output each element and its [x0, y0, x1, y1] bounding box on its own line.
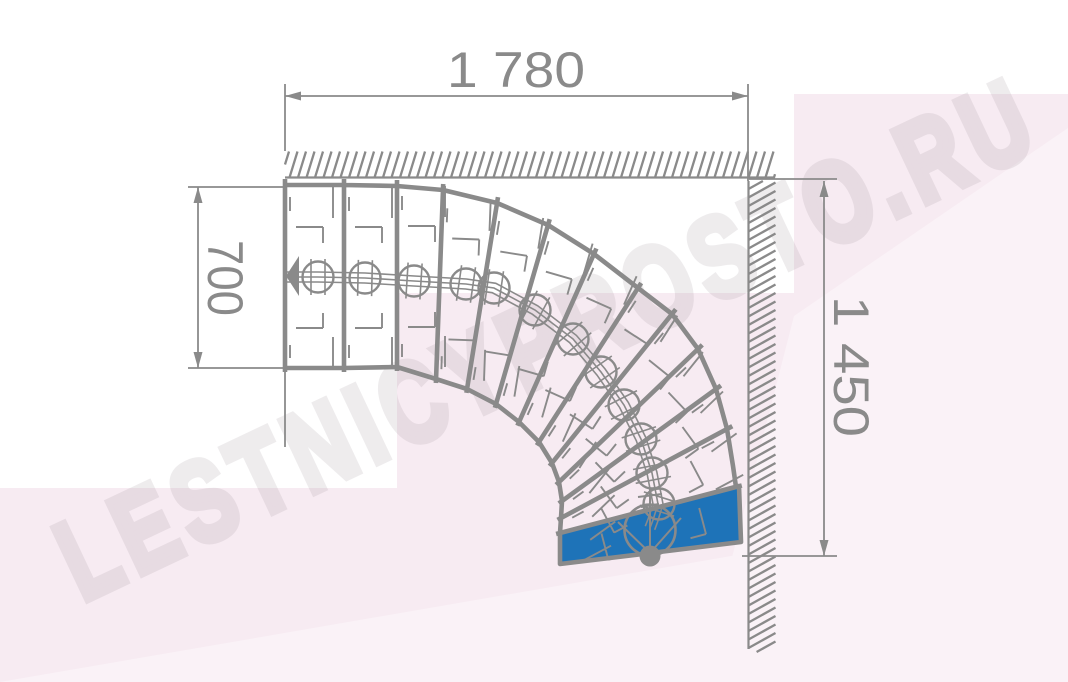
svg-text:1 780: 1 780: [447, 42, 585, 98]
svg-text:1 450: 1 450: [823, 296, 879, 437]
svg-text:700: 700: [197, 240, 253, 316]
